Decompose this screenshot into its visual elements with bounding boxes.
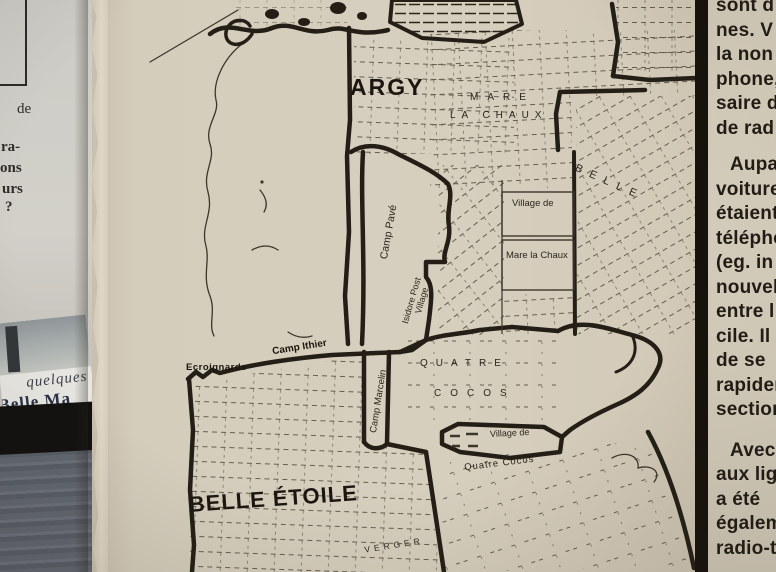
text-fragment: ? — [5, 199, 13, 216]
map-label-mare-la-chaux: Mare la Chaux — [506, 250, 568, 261]
map-label-village-de-qc: Village de — [490, 427, 530, 439]
article-line: section — [716, 398, 776, 423]
article-line: télépho — [716, 227, 776, 252]
article-line: de rad — [716, 117, 776, 142]
text-fragment: ra- — [1, 139, 20, 156]
article-line: a été — [716, 488, 776, 513]
article-line: nouvell — [716, 276, 776, 301]
article-line: sont d — [716, 0, 776, 19]
map-label-la-chaux: LA CHAUX — [450, 110, 547, 121]
article-column: sont d nes. V la non phone, saire d de r… — [708, 0, 776, 572]
article-line: cile. Il — [716, 325, 776, 350]
article-line: saire d — [716, 92, 776, 117]
article-line: la non — [716, 43, 776, 68]
map-label-mare: MARE — [470, 92, 535, 103]
map-label-ecroignarde: Ecroignarde — [186, 362, 247, 373]
map-label-quatre: QUATRE — [420, 358, 509, 369]
map-label-argy: ARGY — [350, 74, 424, 101]
article-text: sont d nes. V la non phone, saire d de r… — [716, 0, 776, 561]
article-line: voiture — [716, 178, 776, 203]
map-label-cocos: COCOS — [434, 388, 516, 399]
text-fragment: urs — [2, 181, 23, 198]
article-line: Aupa — [716, 153, 776, 178]
text-fragment: de — [17, 101, 31, 118]
box-frame-corner — [0, 0, 27, 86]
article-line: aux lig — [716, 463, 776, 488]
page-edge-shadow — [74, 0, 88, 572]
article-line: étaient — [716, 202, 776, 227]
article-line: de se — [716, 349, 776, 374]
text-fragment: ons — [0, 160, 22, 177]
map-page: ARGY MARE LA CHAUX Village de Mare la Ch… — [92, 0, 698, 572]
article-line: égalem — [716, 512, 776, 537]
newspaper-photo: de ra- ons urs ? quelques Belle Ma — [0, 0, 776, 572]
article-line: phone, — [716, 68, 776, 93]
article-line: entre l — [716, 300, 776, 325]
article-line: Avec — [716, 439, 776, 464]
article-line: rapidem — [716, 374, 776, 399]
photo-silhouette — [5, 326, 20, 373]
article-line: (eg. in — [716, 251, 776, 276]
article-line: radio-t — [716, 537, 776, 562]
map-label-village-de-mare: Village de — [512, 198, 554, 209]
article-line: nes. V — [716, 19, 776, 44]
column-rule — [695, 0, 708, 572]
